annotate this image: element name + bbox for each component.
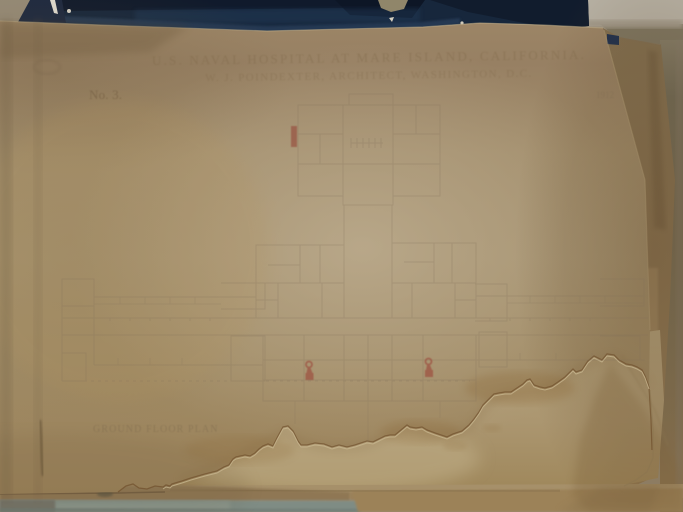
svg-text:No. 3.: No. 3. <box>89 87 123 102</box>
svg-text:1912: 1912 <box>596 90 614 100</box>
svg-text:GROUND FLOOR PLAN: GROUND FLOOR PLAN <box>93 424 219 435</box>
